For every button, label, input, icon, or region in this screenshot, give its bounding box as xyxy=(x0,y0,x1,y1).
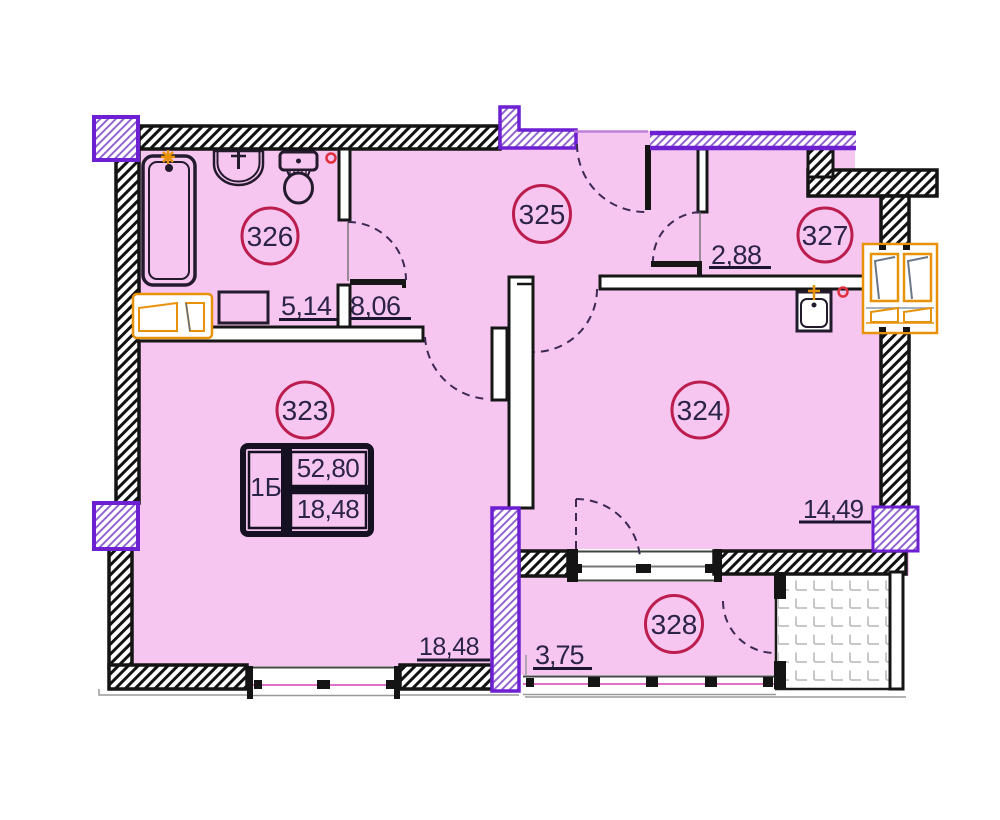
svg-text:324: 324 xyxy=(677,395,724,426)
svg-text:1Б: 1Б xyxy=(250,472,282,502)
svg-text:323: 323 xyxy=(282,395,329,426)
svg-text:3,75: 3,75 xyxy=(535,640,584,670)
svg-text:5,14: 5,14 xyxy=(281,291,332,321)
svg-text:18,48: 18,48 xyxy=(297,494,360,524)
svg-text:8,06: 8,06 xyxy=(350,291,401,321)
svg-text:52,80: 52,80 xyxy=(297,453,360,483)
svg-text:325: 325 xyxy=(519,199,566,230)
svg-text:327: 327 xyxy=(802,220,849,251)
svg-text:14,49: 14,49 xyxy=(803,494,864,524)
svg-text:326: 326 xyxy=(247,221,294,252)
svg-text:18,48: 18,48 xyxy=(419,633,479,661)
svg-text:2,88: 2,88 xyxy=(711,240,762,270)
svg-text:328: 328 xyxy=(651,609,698,640)
